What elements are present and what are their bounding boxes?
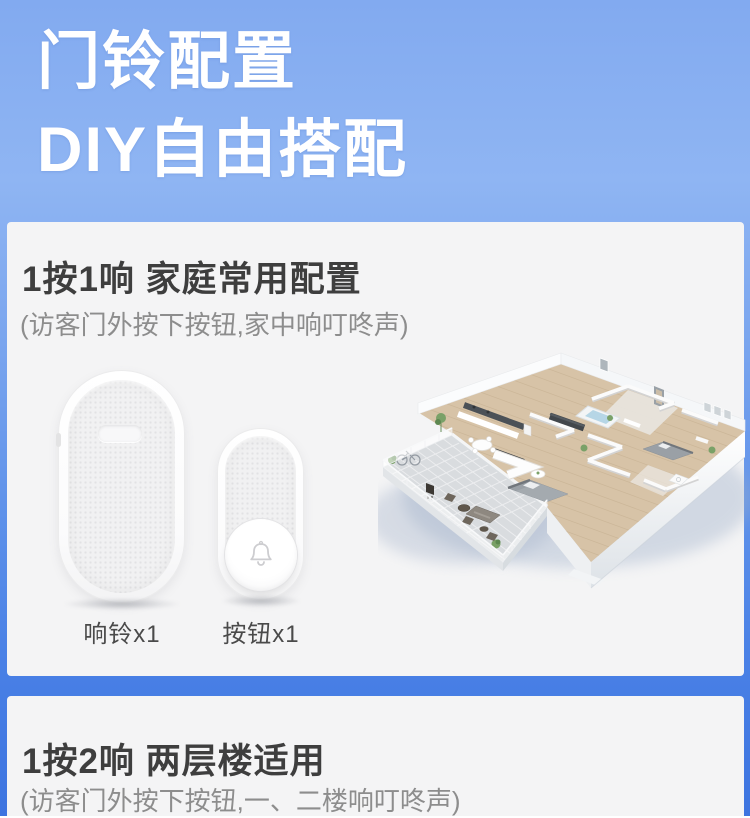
card1-subtitle: (访客门外按下按钮,家中响叮咚声): [20, 308, 409, 342]
chime-slot: [98, 425, 142, 442]
button-label: 按钮x1: [196, 620, 326, 650]
hero-title-line1: 门铃配置: [37, 18, 408, 106]
card1-title: 1按1响 家庭常用配置: [22, 258, 362, 302]
chime-shadow: [62, 598, 182, 610]
button-shadow: [220, 595, 302, 607]
config-card-1: 1按1响 家庭常用配置 (访客门外按下按钮,家中响叮咚声) 响铃x1 按钮x1: [7, 222, 744, 676]
product-detail-page: 门铃配置 DIY自由搭配 1按1响 家庭常用配置 (访客门外按下按钮,家中响叮咚…: [0, 0, 750, 816]
floorplan-3d-image: [378, 350, 750, 595]
round-press-button: [225, 519, 297, 591]
chime-label: 响铃x1: [57, 620, 187, 650]
chime-receiver-image: [58, 370, 185, 603]
hero-banner: 门铃配置 DIY自由搭配: [0, 0, 750, 222]
hero-title-line2: DIY自由搭配: [37, 106, 408, 194]
config-card-2: 1按2响 两层楼适用 (访客门外按下按钮,一、二楼响叮咚声): [7, 696, 744, 816]
chime-side-key: [56, 433, 61, 447]
card2-title: 1按2响 两层楼适用: [22, 740, 326, 784]
doorbell-button-image: [217, 428, 304, 600]
bell-icon: [244, 537, 278, 571]
hero-title: 门铃配置 DIY自由搭配: [37, 18, 408, 194]
card2-subtitle: (访客门外按下按钮,一、二楼响叮咚声): [20, 784, 461, 818]
chime-texture-panel: [68, 380, 175, 593]
